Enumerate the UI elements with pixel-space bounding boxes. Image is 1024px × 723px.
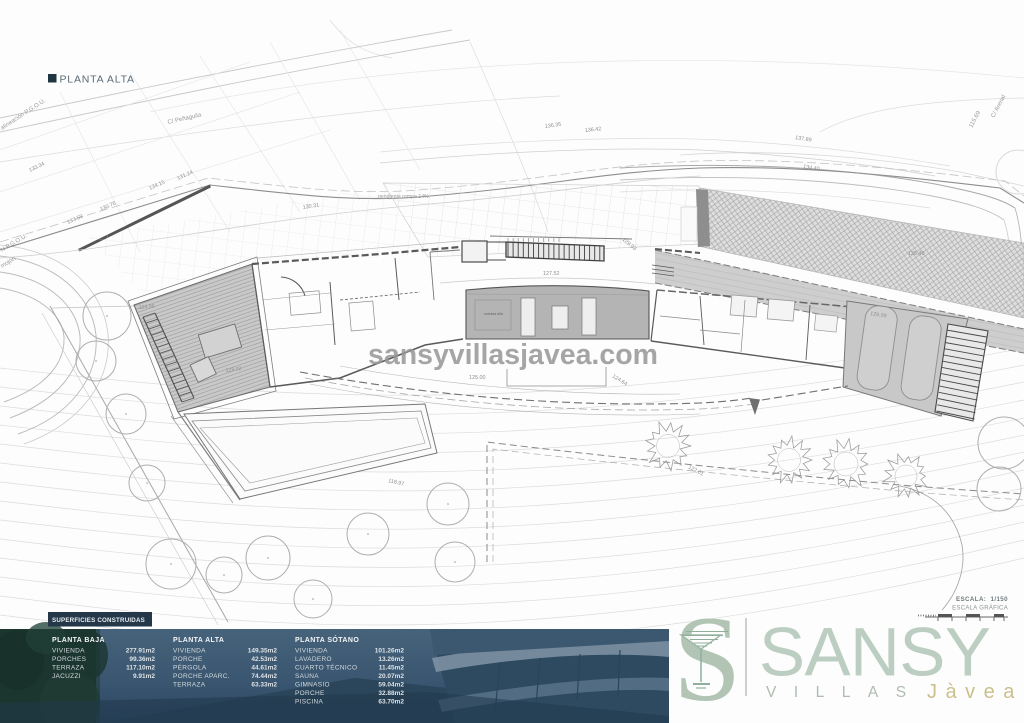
svg-text:SANSY: SANSY: [759, 614, 990, 691]
svg-text:PORCHES: PORCHES: [52, 656, 87, 663]
svg-text:sansyvillasjavea.com: sansyvillasjavea.com: [368, 339, 658, 371]
svg-text:PLANTA BAJA: PLANTA BAJA: [52, 637, 105, 644]
svg-text:VIVIENDA: VIVIENDA: [52, 648, 85, 655]
svg-text:117.10m2: 117.10m2: [126, 665, 155, 672]
svg-text:CUARTO TÉCNICO: CUARTO TÉCNICO: [295, 663, 357, 672]
svg-text:20.07m2: 20.07m2: [378, 673, 404, 680]
svg-text:entrada alta: entrada alta: [484, 312, 503, 316]
svg-text:VIVIENDA: VIVIENDA: [173, 648, 206, 655]
svg-text:44.61m2: 44.61m2: [251, 665, 277, 672]
svg-text:ESCALA: 1/150: ESCALA: 1/150: [956, 596, 1008, 603]
svg-text:VILLAS: VILLAS: [766, 684, 924, 701]
svg-text:PORCHE: PORCHE: [173, 656, 203, 663]
svg-text:GIMNASIO: GIMNASIO: [295, 682, 330, 689]
svg-text:101.26m2: 101.26m2: [375, 648, 405, 655]
svg-text:59.04m2: 59.04m2: [378, 682, 404, 689]
svg-text:TERRAZA: TERRAZA: [173, 682, 206, 689]
svg-text:125.00: 125.00: [469, 375, 486, 381]
svg-text:99.36m2: 99.36m2: [129, 656, 155, 663]
svg-text:PÉRGOLA: PÉRGOLA: [173, 663, 207, 672]
svg-text:SAUNA: SAUNA: [295, 673, 319, 680]
svg-text:SUPERFICIES CONSTRUIDAS: SUPERFICIES CONSTRUIDAS: [52, 617, 145, 624]
svg-text:JACUZZI: JACUZZI: [52, 673, 81, 680]
svg-text:11.45m2: 11.45m2: [379, 665, 405, 672]
svg-text:127.52: 127.52: [543, 271, 560, 277]
svg-text:42.53m2: 42.53m2: [251, 656, 277, 663]
svg-text:ESCALA GRÁFICA: ESCALA GRÁFICA: [952, 605, 1008, 612]
svg-text:TERRAZA: TERRAZA: [52, 665, 85, 672]
svg-text:149.35m2: 149.35m2: [248, 648, 278, 655]
svg-text:PLANTA ALTA: PLANTA ALTA: [173, 637, 224, 644]
svg-text:PISCINA: PISCINA: [295, 699, 323, 706]
svg-text:74.44m2: 74.44m2: [251, 673, 277, 680]
svg-text:S: S: [673, 590, 741, 723]
svg-text:32.88m2: 32.88m2: [378, 690, 404, 697]
svg-text:63.33m2: 63.33m2: [251, 682, 277, 689]
svg-text:LAVADERO: LAVADERO: [295, 656, 332, 663]
svg-text:pendiente rampa 14%: pendiente rampa 14%: [378, 194, 429, 200]
svg-text:PLANTA ALTA: PLANTA ALTA: [60, 74, 135, 86]
svg-text:VIVIENDA: VIVIENDA: [295, 648, 328, 655]
svg-text:PORCHE APARC.: PORCHE APARC.: [173, 673, 230, 680]
svg-text:Jàvea: Jàvea: [927, 681, 1023, 703]
svg-text:PORCHE: PORCHE: [295, 690, 325, 697]
svg-text:63.70m2: 63.70m2: [378, 699, 404, 706]
svg-text:PLANTA SÓTANO: PLANTA SÓTANO: [295, 635, 359, 644]
svg-text:9.91m2: 9.91m2: [133, 673, 155, 680]
svg-text:13.26m2: 13.26m2: [378, 656, 404, 663]
svg-text:277.91m2: 277.91m2: [126, 648, 156, 655]
svg-text:125.40: 125.40: [908, 251, 925, 257]
